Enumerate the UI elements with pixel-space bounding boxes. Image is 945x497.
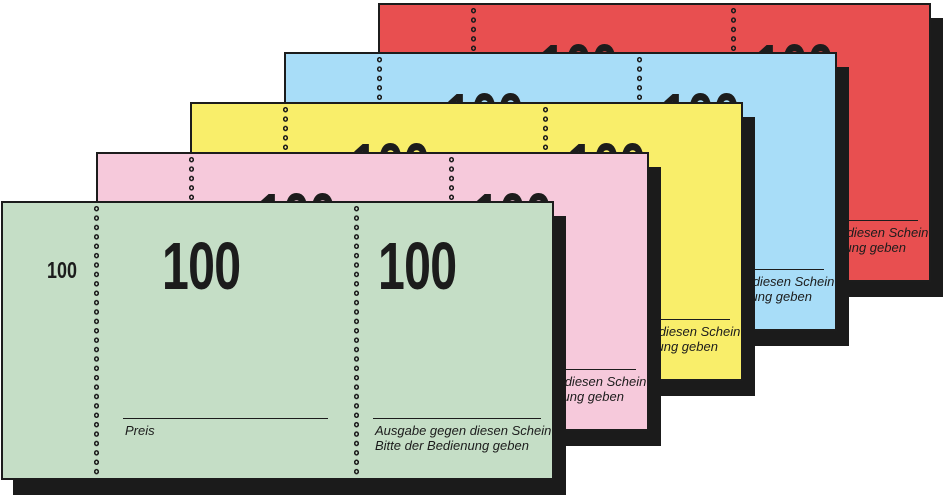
stub-number: 100 xyxy=(47,262,77,279)
signature-line xyxy=(373,418,541,419)
perforation-dots-left xyxy=(92,203,101,478)
product-image: 100 100 100 Preis Ausgabe gegen diesen S… xyxy=(0,0,945,497)
issue-text-line2: Bitte der Bedienung geben xyxy=(375,438,529,453)
price-label: Preis xyxy=(125,423,155,438)
ticket-green: 100 100 100 Preis Ausgabe gegen diesen S… xyxy=(1,201,554,480)
coupon-number-middle: 100 xyxy=(162,243,240,291)
price-line xyxy=(123,418,328,419)
coupon-number-right: 100 xyxy=(378,243,456,291)
perforation-dots-right xyxy=(352,203,361,478)
issue-text-line1: Ausgabe gegen diesen Schein xyxy=(375,423,551,438)
